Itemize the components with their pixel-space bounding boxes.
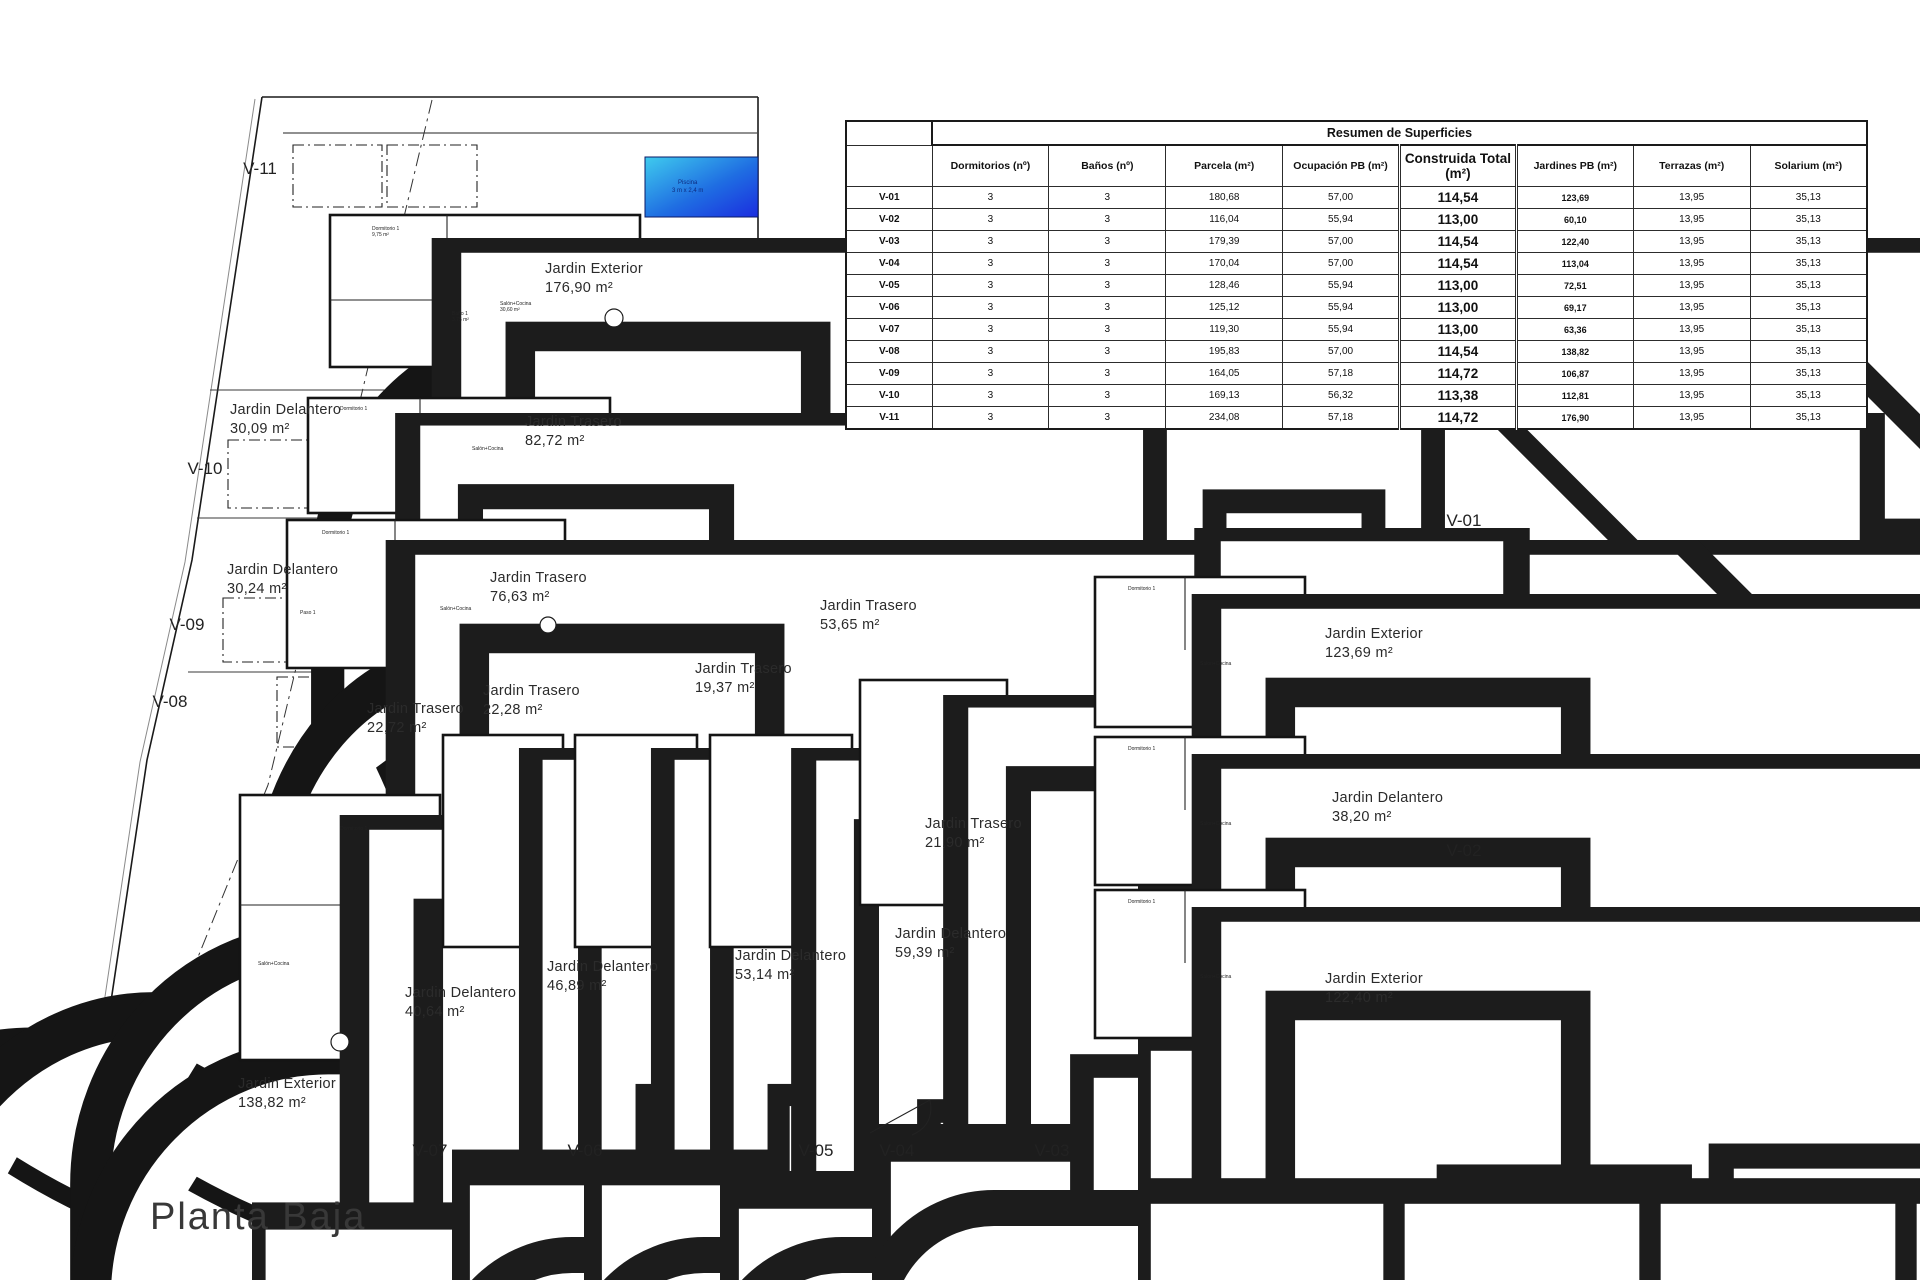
table-row: V-0333179,3957,00114,54122,4013,9535,13 [846,231,1867,253]
svg-text:V-07: V-07 [413,1141,448,1160]
col-jardines: Jardines PB (m²) [1516,145,1633,187]
round-table-icon [331,1033,349,1051]
empty-header-cell [846,145,932,187]
svg-text:Salón+Cocina: Salón+Cocina [258,961,289,967]
table-row: V-0433170,0457,00114,54113,0413,9535,13 [846,253,1867,275]
col-solarium: Solarium (m²) [1750,145,1867,187]
house-v03: Dormitorio 1 Salón+Cocina [1095,890,1920,1280]
svg-text:V-10: V-10 [188,459,223,478]
table-header-row: Dormitorios (nº) Baños (nº) Parcela (m²)… [846,145,1867,187]
table-row: V-0233116,0455,94113,0060,1013,9535,13 [846,209,1867,231]
svg-text:Dormitorio 1: Dormitorio 1 [322,530,349,536]
svg-text:Salón+Cocina: Salón+Cocina [1200,974,1231,980]
round-table-icon [605,309,623,327]
svg-text:V-01: V-01 [1447,511,1482,530]
col-terrazas: Terrazas (m²) [1633,145,1750,187]
svg-text:3,75 m²: 3,75 m² [452,317,469,323]
table-row: V-1033169,1356,32113,38112,8113,9535,13 [846,385,1867,407]
svg-text:Dormitorio 1: Dormitorio 1 [340,406,367,412]
svg-text:V-03: V-03 [1035,1141,1070,1160]
table-row: V-0633125,1255,94113,0069,1713,9535,13 [846,297,1867,319]
svg-text:V-04: V-04 [880,1141,915,1160]
svg-text:Piscina: Piscina [678,180,698,186]
svg-text:Dormitorio 1: Dormitorio 1 [1128,586,1155,592]
table-title-row: Resumen de Superficies [846,121,1867,145]
table-row: V-1133234,0857,18114,72176,9013,9535,13 [846,407,1867,430]
svg-text:V-05: V-05 [799,1141,834,1160]
col-construida: Construida Total (m²) [1400,145,1517,187]
svg-text:V-06: V-06 [568,1141,603,1160]
table-body: V-0133180,6857,00114,54123,6913,9535,13V… [846,187,1867,430]
table-row: V-0933164,0557,18114,72106,8713,9535,13 [846,363,1867,385]
table-title: Resumen de Superficies [932,121,1867,145]
table-row: V-0533128,4655,94113,0072,5113,9535,13 [846,275,1867,297]
svg-text:30,60 m²: 30,60 m² [500,307,520,313]
col-parcela: Parcela (m²) [1166,145,1283,187]
round-table-icon [540,617,556,633]
svg-text:9,75 m²: 9,75 m² [372,232,389,238]
svg-text:Salón+Cocina: Salón+Cocina [1200,661,1231,667]
empty-cell [846,121,932,145]
col-banos: Baños (nº) [1049,145,1166,187]
svg-text:V-09: V-09 [170,615,205,634]
svg-text:Dormitorio 1: Dormitorio 1 [1128,899,1155,905]
svg-text:Salón+Cocina: Salón+Cocina [1200,821,1231,827]
svg-text:Salón+Cocina: Salón+Cocina [440,606,471,612]
col-ocupacion: Ocupación PB (m²) [1283,145,1400,187]
pool-icon: Piscina3 m x 2,4 m [645,157,758,217]
table-row: V-0733119,3055,94113,0063,3613,9535,13 [846,319,1867,341]
svg-text:Salón+Cocina: Salón+Cocina [472,446,503,452]
svg-text:3 m x 2,4 m: 3 m x 2,4 m [672,188,703,194]
svg-text:Dormitorio 1: Dormitorio 1 [1128,746,1155,752]
stairs-icon [1138,1191,1920,1280]
surface-summary-table: Resumen de Superficies Dormitorios (nº) … [845,120,1868,430]
floorplan-sheet: Piscina3 m x 2,4 m Piscina3 m x 2,4 m Pi… [0,0,1920,1280]
svg-text:V-11: V-11 [243,159,277,178]
page-title: Planta Baja [150,1196,366,1239]
table-row: V-0833195,8357,00114,54138,8213,9535,13 [846,341,1867,363]
svg-text:Dormitorio 1: Dormitorio 1 [340,826,367,832]
svg-text:V-02: V-02 [1447,841,1482,860]
col-dormitorios: Dormitorios (nº) [932,145,1049,187]
svg-text:V-08: V-08 [153,692,188,711]
table-row: V-0133180,6857,00114,54123,6913,9535,13 [846,187,1867,209]
svg-text:Paso 1: Paso 1 [300,610,316,616]
